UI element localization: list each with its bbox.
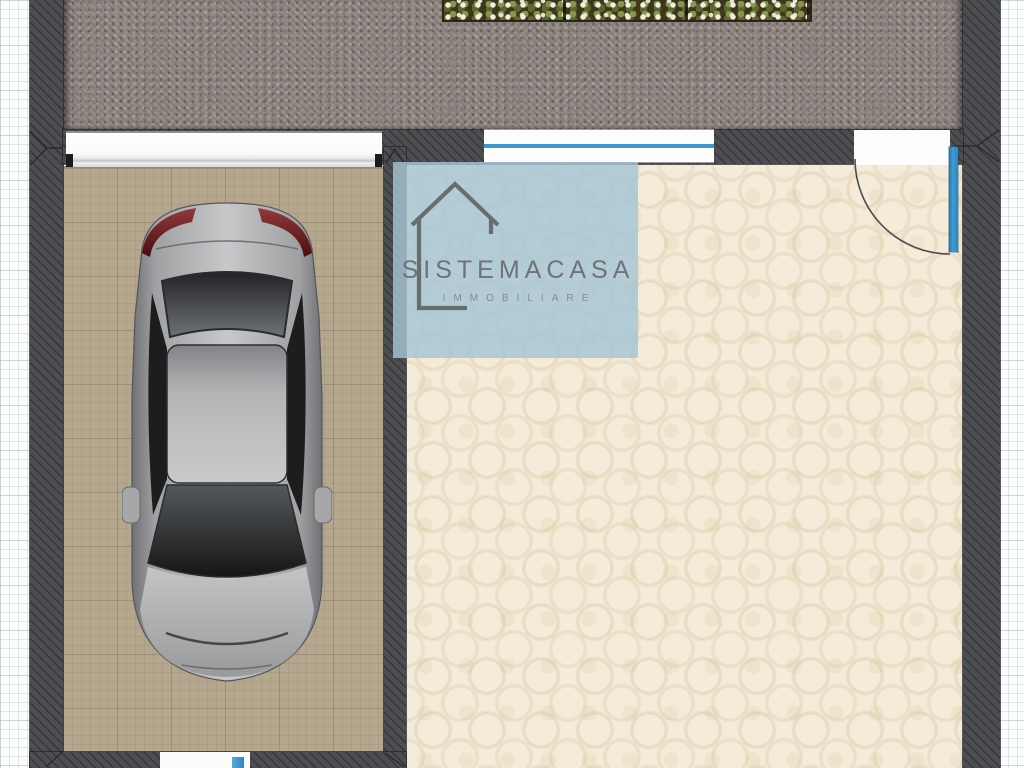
car-mirror-left <box>122 487 140 523</box>
car-top-view <box>122 197 332 687</box>
wall-right <box>963 0 1000 768</box>
garage-door-end-cap <box>66 154 73 167</box>
wall-left <box>30 0 63 768</box>
floor-plan: SISTEMACASA IMMOBILIARE <box>0 0 1024 768</box>
flower-hedge <box>442 0 812 22</box>
car-rear-window <box>162 272 292 337</box>
entry-door-opening <box>854 130 950 165</box>
car-roof <box>167 345 287 483</box>
watermark-brand: SISTEMACASA <box>393 256 638 285</box>
garage-door-end-cap <box>375 154 382 167</box>
rear-door-leaf <box>232 757 244 768</box>
entry-door-leaf <box>949 147 958 252</box>
watermark-tagline: IMMOBILIARE <box>393 293 638 304</box>
window-opening <box>484 129 714 163</box>
car-windshield <box>148 485 306 577</box>
watermark-panel: SISTEMACASA IMMOBILIARE <box>393 162 638 358</box>
car-hood <box>140 567 314 677</box>
window-glass-line <box>484 144 714 148</box>
car-mirror-right <box>314 487 332 523</box>
garage-door-opening <box>66 131 382 167</box>
rear-door-opening <box>160 752 250 768</box>
